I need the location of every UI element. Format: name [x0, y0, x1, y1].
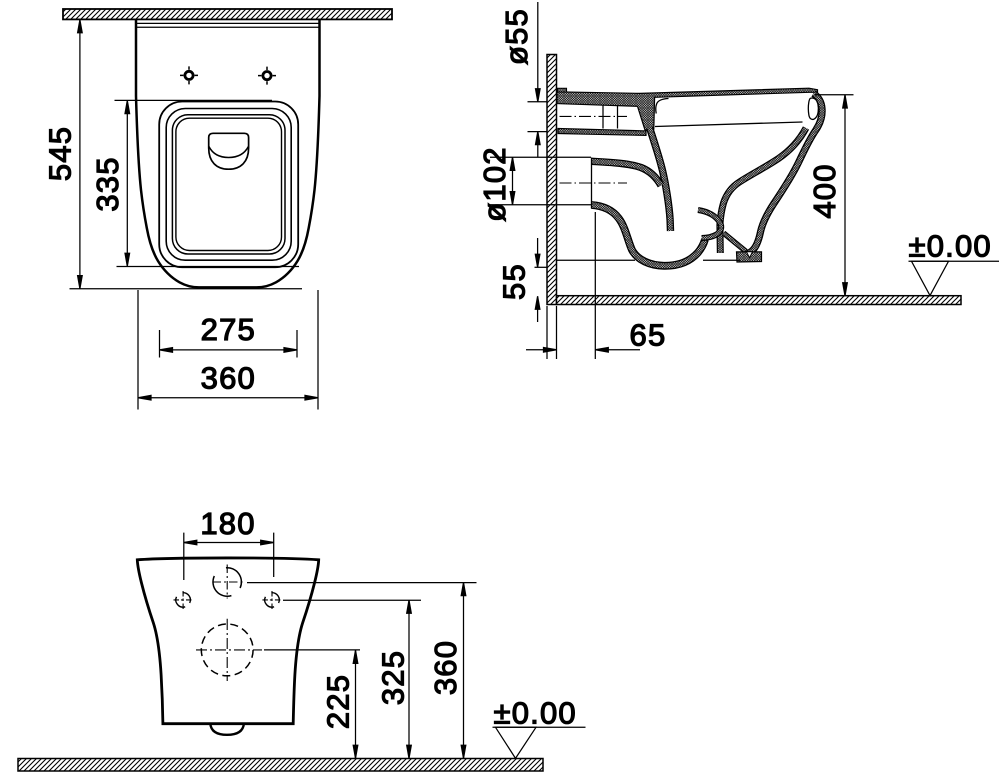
svg-text:55: 55: [497, 263, 532, 300]
svg-text:225: 225: [321, 674, 356, 729]
svg-text:275: 275: [201, 312, 256, 347]
svg-text:ø102: ø102: [477, 146, 512, 221]
svg-text:325: 325: [376, 650, 411, 705]
svg-text:545: 545: [43, 126, 78, 181]
svg-text:335: 335: [90, 156, 125, 211]
svg-text:±0.00: ±0.00: [909, 229, 992, 264]
svg-text:65: 65: [630, 318, 667, 353]
svg-text:180: 180: [200, 506, 255, 541]
svg-text:360: 360: [428, 640, 463, 695]
svg-text:ø55: ø55: [499, 8, 534, 65]
svg-text:400: 400: [807, 163, 842, 218]
svg-text:360: 360: [201, 361, 256, 396]
svg-text:±0.00: ±0.00: [494, 696, 577, 731]
